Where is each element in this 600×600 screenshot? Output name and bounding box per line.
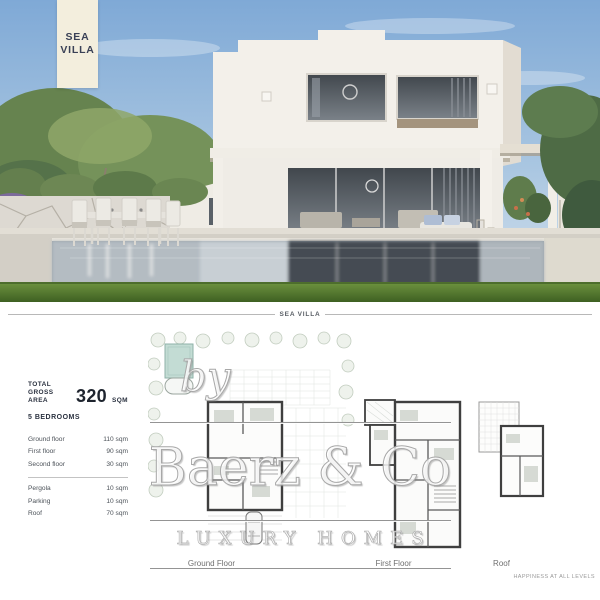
total-label: TOTAL GROSS AREA [28, 381, 71, 405]
watermark-rule-bottom [150, 568, 451, 569]
row-label: Roof [28, 510, 42, 517]
row-value: 90 sqm [106, 448, 128, 455]
banner-line2: VILLA [60, 44, 94, 57]
footer-slogan: HAPPINESS AT ALL LEVELS [505, 574, 595, 580]
plan-label-ground-floor: Ground Floor [169, 559, 254, 568]
total-gross-area: TOTAL GROSS AREA 320 SQM [28, 381, 128, 405]
plan-label-first-floor: First Floor [351, 559, 436, 568]
pool-steps [165, 378, 193, 394]
table-row: Second floor 30 sqm [28, 458, 128, 471]
roof-plan [479, 402, 543, 496]
section-title: SEA VILLA [275, 311, 326, 318]
table-divider [28, 477, 128, 478]
row-label: Ground floor [28, 436, 65, 443]
floor-plans [148, 330, 552, 552]
row-label: Parking [28, 498, 50, 505]
table-row: Ground floor 110 sqm [28, 433, 128, 446]
total-unit: SQM [112, 397, 128, 405]
table-row: First floor 90 sqm [28, 446, 128, 459]
total-label-line2: GROSS AREA [28, 389, 71, 405]
upper-window-right [397, 76, 478, 128]
bedrooms-label: 5 BEDROOMS [28, 414, 128, 421]
grass [0, 282, 600, 302]
ground-floor-plan [148, 332, 354, 544]
row-value: 10 sqm [106, 485, 128, 492]
plan-pool [165, 344, 193, 378]
row-value: 30 sqm [106, 461, 128, 468]
cushion [424, 215, 442, 225]
pool [52, 238, 544, 285]
watermark-rule-top [150, 422, 451, 423]
floor-area-table: Ground floor 110 sqm First floor 90 sqm … [28, 433, 128, 520]
total-label-line1: TOTAL [28, 381, 71, 389]
info-panel: TOTAL GROSS AREA 320 SQM 5 BEDROOMS Grou… [28, 381, 128, 520]
row-value: 10 sqm [106, 498, 128, 505]
watermark-rule-middle [150, 520, 451, 521]
parking-car [208, 512, 282, 544]
sofa [300, 212, 342, 228]
property-banner: SEA VILLA [57, 0, 98, 88]
cushion [444, 215, 460, 225]
row-label: Second floor [28, 461, 65, 468]
coffee-table [352, 218, 380, 227]
row-label: Pergola [28, 485, 51, 492]
wall-lamp [487, 84, 497, 94]
upper-window-left [307, 74, 386, 121]
column [213, 158, 223, 238]
divider-line-right [325, 314, 592, 315]
table-row: Roof 70 sqm [28, 508, 128, 521]
wall-lamp [262, 92, 271, 101]
total-value: 320 [76, 388, 107, 405]
section-divider: SEA VILLA [8, 309, 592, 319]
table-row: Parking 10 sqm [28, 495, 128, 508]
table-row: Pergola 10 sqm [28, 483, 128, 496]
row-value: 70 sqm [106, 510, 128, 517]
row-label: First floor [28, 448, 55, 455]
row-value: 110 sqm [103, 436, 128, 443]
divider-line-left [8, 314, 275, 315]
plan-label-roof: Roof [479, 559, 524, 568]
banner-line1: SEA [66, 31, 90, 44]
planter-strip [397, 119, 478, 128]
